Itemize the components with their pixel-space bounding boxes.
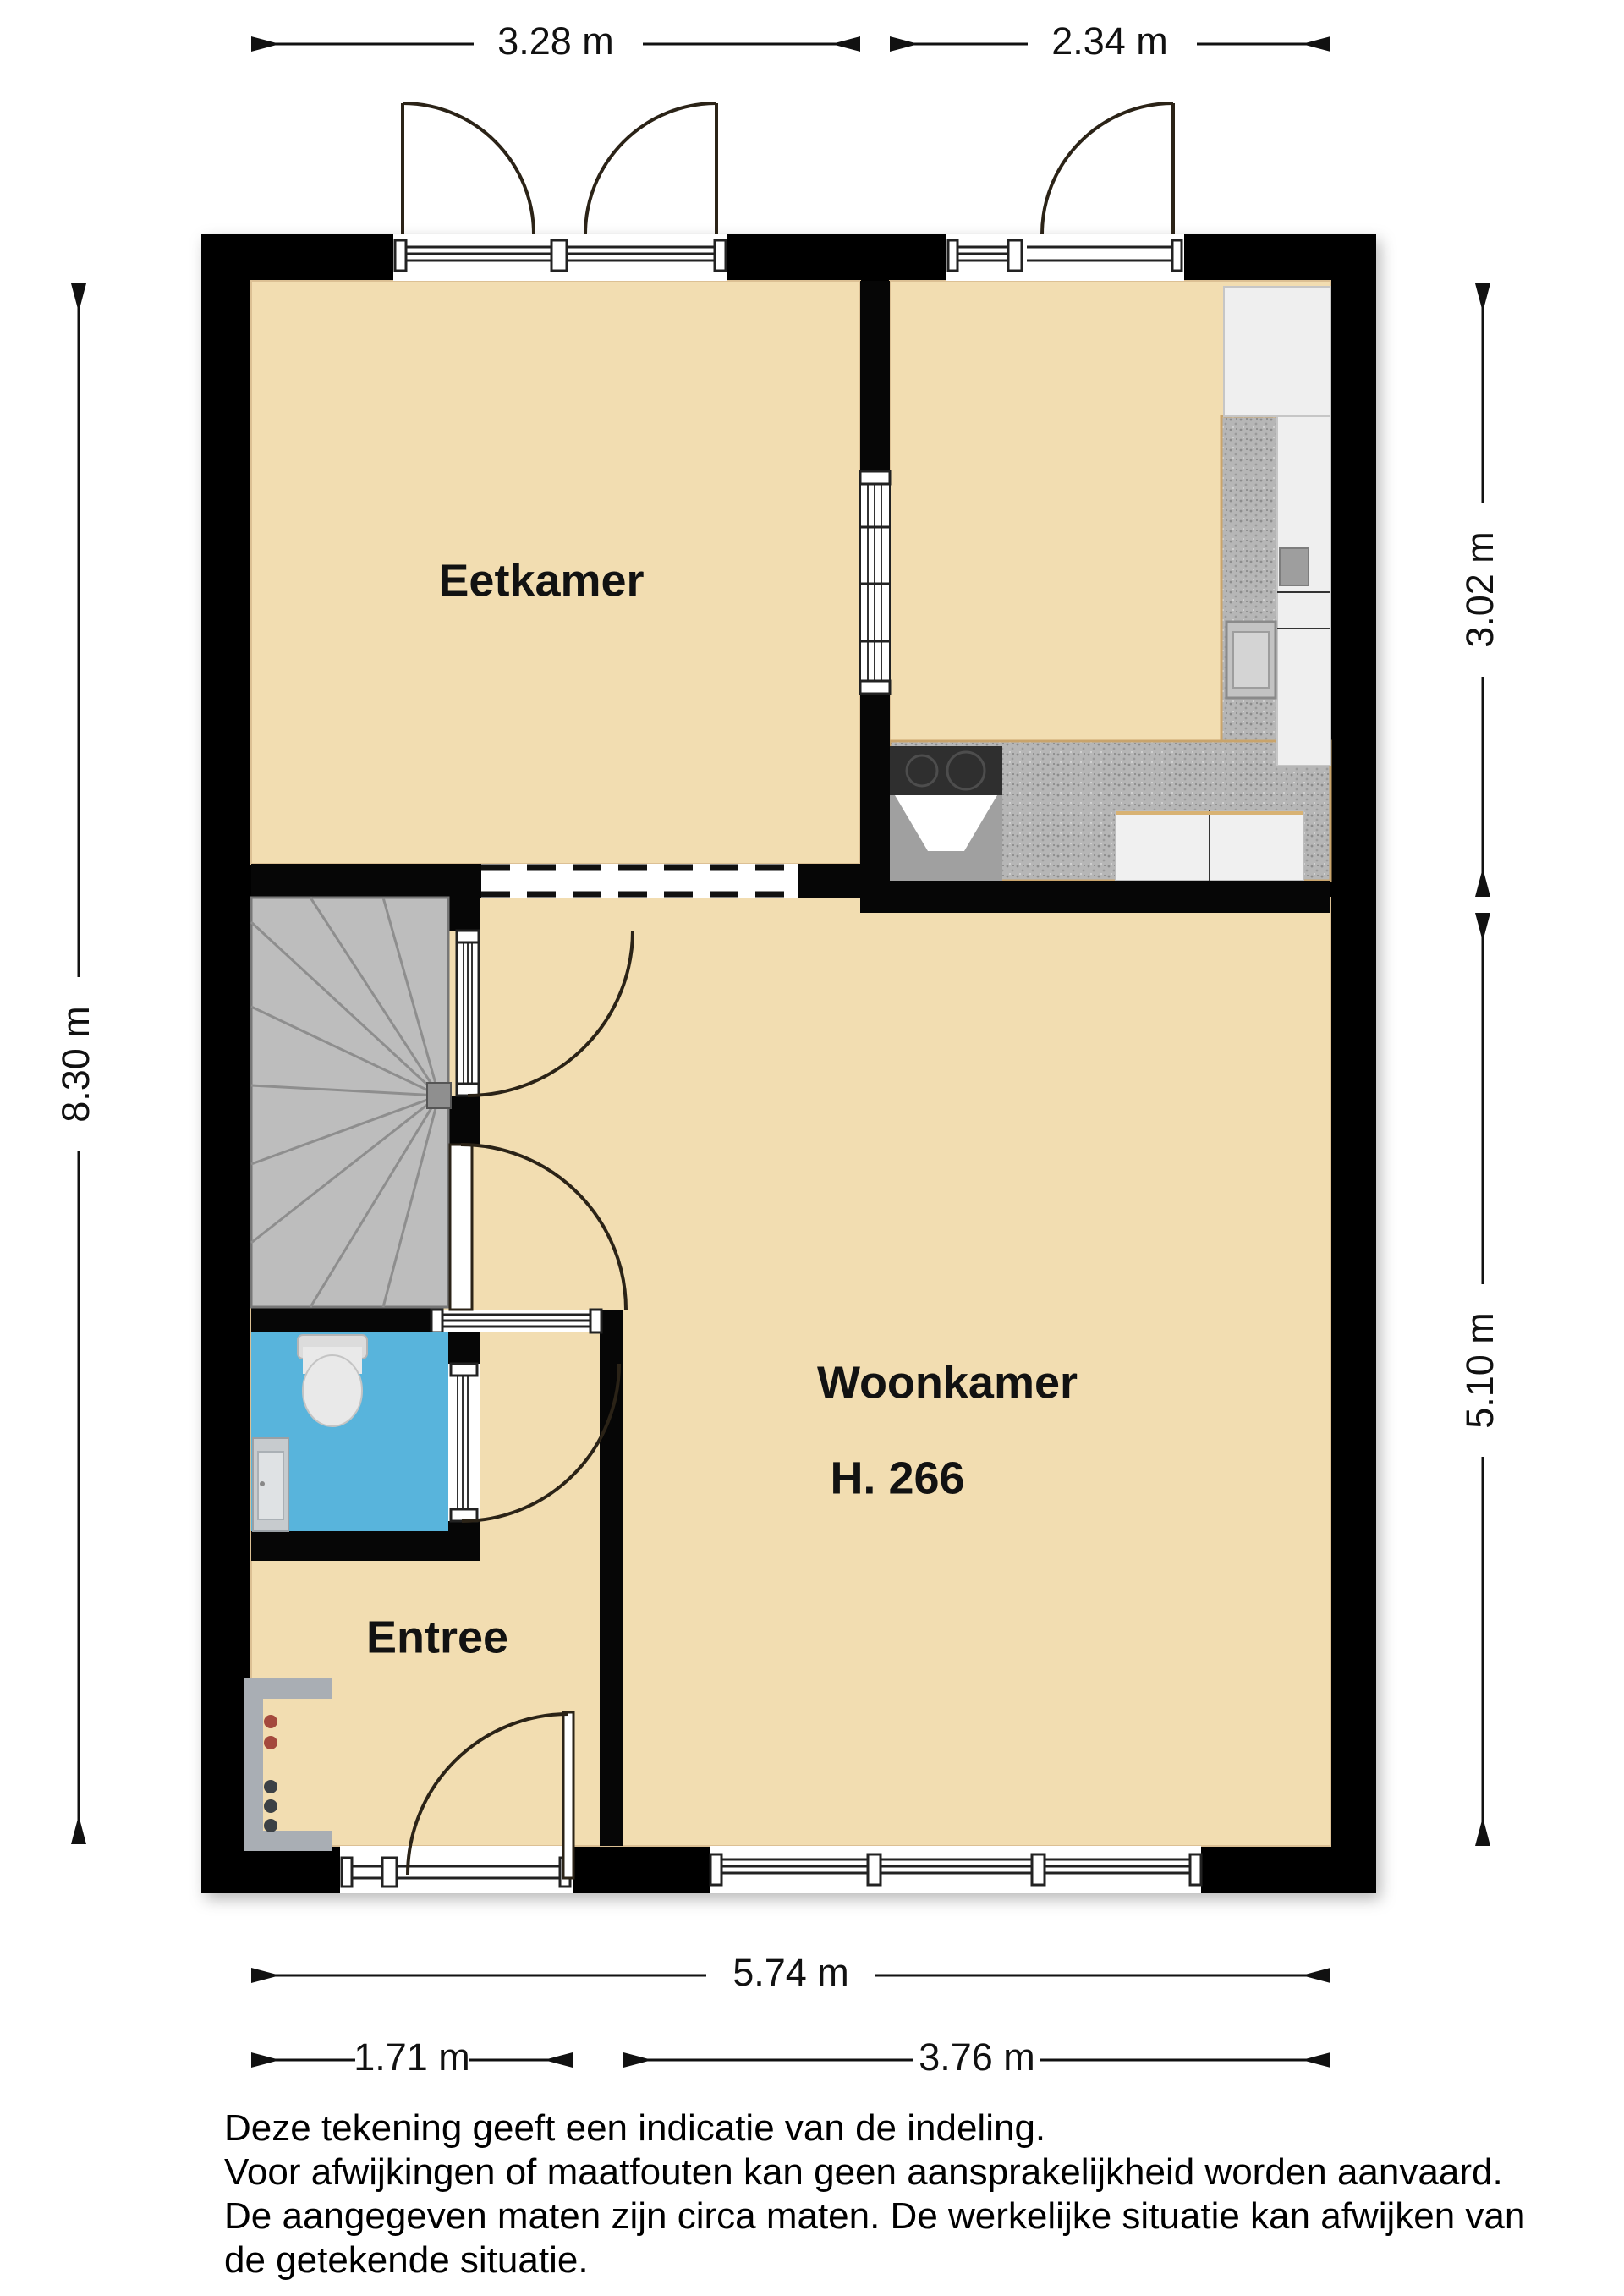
- meter-dot-dark: [264, 1799, 277, 1813]
- disclaimer-line-4: de getekende situatie.: [224, 2239, 589, 2281]
- kitchen-door-swing: [1042, 103, 1173, 234]
- label-eetkamer: Eetkamer: [438, 555, 644, 606]
- disclaimer-line-1: Deze tekening geeft een indicatie van de…: [224, 2107, 1045, 2149]
- dim-left: 8.30 m: [54, 1006, 97, 1123]
- disclaimer-line-3: De aangegeven maten zijn circa maten. De…: [224, 2195, 1525, 2237]
- sink-tap: [260, 1481, 265, 1486]
- disclaimer-line-2: Voor afwijkingen of maatfouten kan geen …: [224, 2151, 1503, 2193]
- label-entree: Entree: [366, 1612, 508, 1662]
- disclaimer: Deze tekening geeft een indicatie van de…: [224, 2107, 1525, 2281]
- toilet-bowl: [303, 1355, 362, 1426]
- kitchen-cabinet-top: [1224, 287, 1330, 416]
- wall-eetkamer-woonkamer-right: [798, 864, 890, 898]
- wall-eetkamer-woonkamer-left: [251, 864, 481, 898]
- meter-dot-red: [264, 1715, 277, 1728]
- kitchen-exterior-door: [946, 103, 1184, 281]
- wall-stairs-top-block: [448, 898, 480, 931]
- kitchen-appliance: [1280, 548, 1309, 585]
- kitchen-cabinet-column: [1277, 416, 1330, 766]
- staircase: [251, 898, 451, 1307]
- meter-dot-red: [264, 1736, 277, 1749]
- dim-top-right: 2.34 m: [1051, 19, 1168, 63]
- entree-door-leaf: [450, 1145, 472, 1310]
- open-passage: [481, 864, 798, 898]
- meter-dot-dark: [264, 1780, 277, 1793]
- meter-dot-dark: [264, 1819, 277, 1832]
- label-woonkamer: Woonkamer: [817, 1357, 1078, 1408]
- wall-stairs-mid-block: [448, 1096, 480, 1145]
- living-window: [710, 1846, 1201, 1893]
- french-door-swing-right: [585, 103, 716, 234]
- dim-right-bottom: 5.10 m: [1458, 1312, 1501, 1429]
- wall-kitchen-woonkamer: [890, 881, 1330, 913]
- wall-entree-woonkamer: [600, 1310, 623, 1846]
- french-doors: [393, 103, 727, 281]
- kitchen-sink-basin: [1233, 632, 1269, 688]
- interior-window: [860, 471, 890, 694]
- floorplan-page: Eetkamer Woonkamer H. 266 Entree 3.28 m …: [0, 0, 1624, 2296]
- dim-bottom-left: 1.71 m: [354, 2035, 470, 2079]
- floorplan-drawing: Eetkamer Woonkamer H. 266 Entree 3.28 m …: [0, 0, 1624, 2296]
- dim-right-top: 3.02 m: [1458, 531, 1501, 648]
- label-woonkamer-height: H. 266: [830, 1453, 964, 1503]
- french-door-swing-left: [403, 103, 534, 234]
- dim-bottom-right: 3.76 m: [919, 2035, 1035, 2079]
- dim-bottom: 5.74 m: [732, 1951, 849, 1994]
- wall-toilet-bottom: [251, 1531, 480, 1561]
- toilet-doorway: [448, 1364, 480, 1521]
- stair-newel-post: [427, 1083, 451, 1108]
- dim-top-left: 3.28 m: [497, 19, 614, 63]
- front-door-leaf: [563, 1712, 573, 1878]
